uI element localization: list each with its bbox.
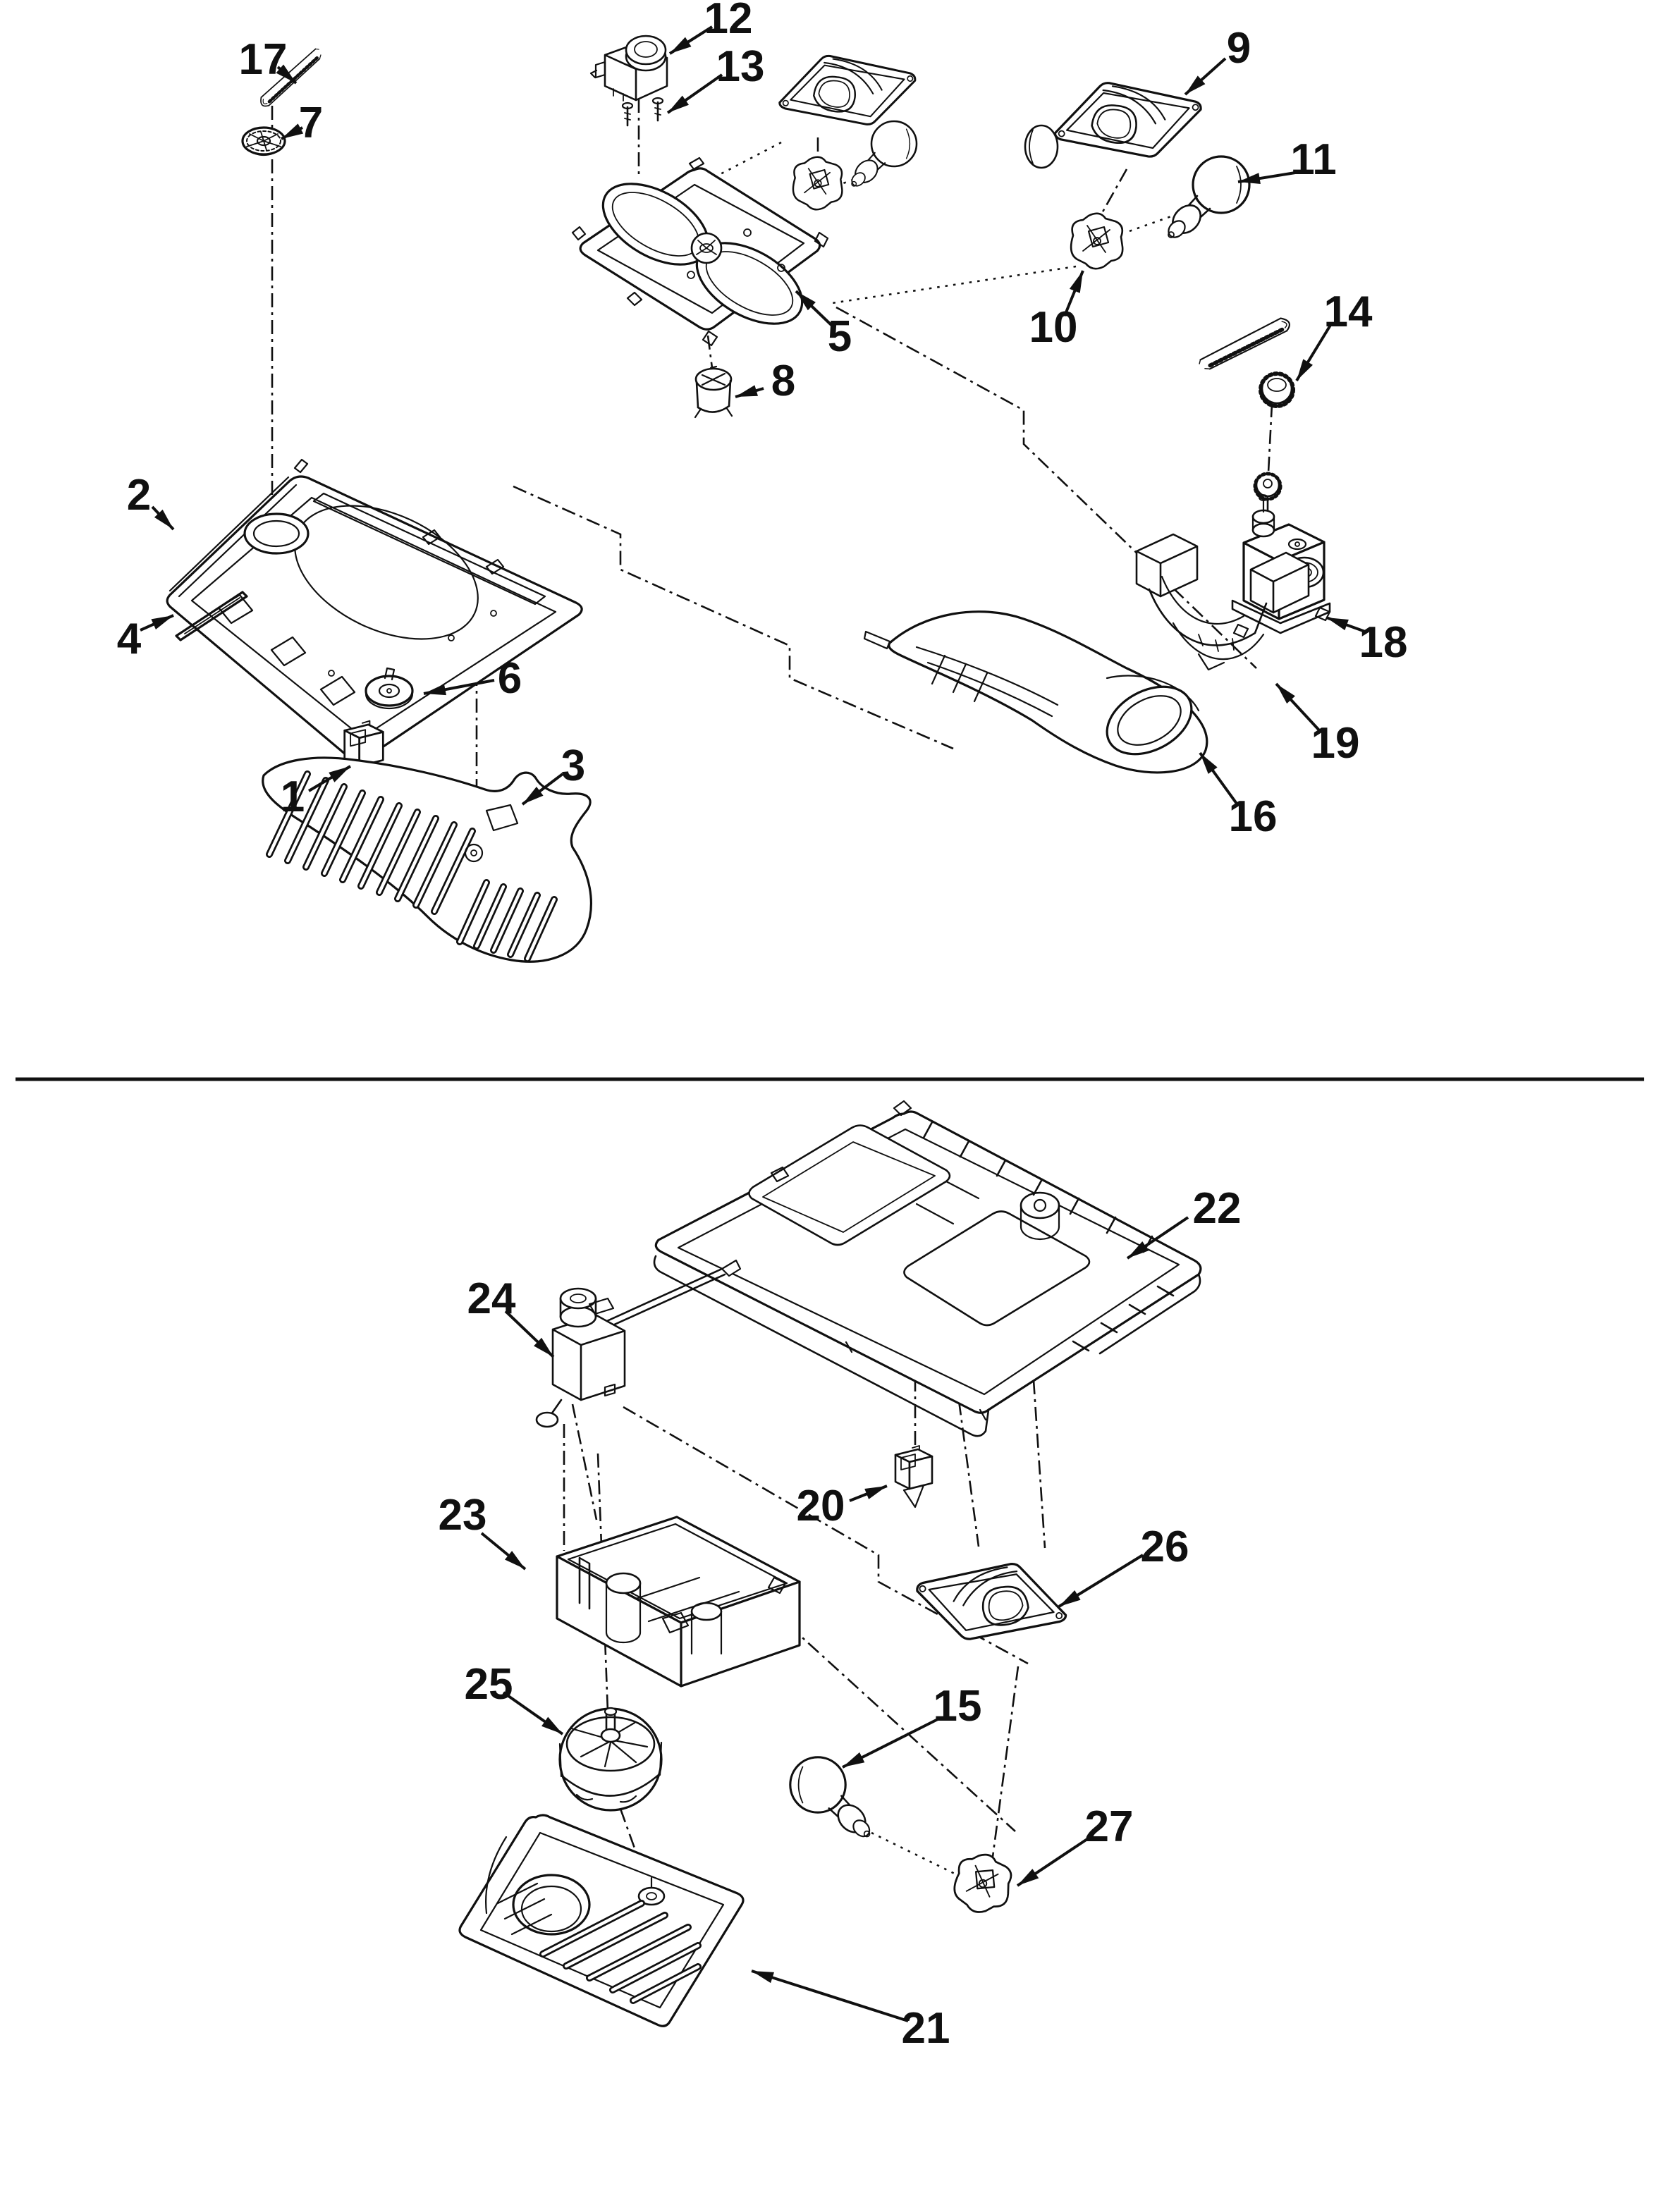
- callout-number-20: 20: [797, 1482, 845, 1530]
- part-cap-18: [1255, 474, 1280, 499]
- callout-number-25: 25: [465, 1660, 513, 1709]
- part-control-box-23: [557, 1517, 800, 1686]
- callout-14: 14: [1297, 288, 1373, 381]
- callout-number-11: 11: [1290, 135, 1337, 184]
- exploded-parts-diagram: 1 2 3 4 5 6 7 8 9 10 11 12 13 14 15 16 1…: [0, 0, 1659, 2212]
- callout-11: 11: [1238, 135, 1337, 184]
- callout-number-9: 9: [1227, 24, 1251, 73]
- part-mount-8: [695, 367, 732, 417]
- callout-number-17: 17: [239, 35, 288, 84]
- part-socket-left: [793, 157, 842, 209]
- part-lamp-cover-26: [912, 1553, 1071, 1651]
- callout-number-15: 15: [933, 1682, 982, 1731]
- callout-number-7: 7: [299, 99, 323, 147]
- callout-number-24: 24: [467, 1274, 516, 1323]
- callout-25: 25: [465, 1660, 563, 1734]
- leader-line-13: [668, 75, 722, 113]
- part-bulb-left: [850, 121, 917, 188]
- callout-19: 19: [1276, 684, 1359, 768]
- leader-line-15: [843, 1719, 939, 1767]
- callout-5: 5: [796, 291, 852, 361]
- callout-20: 20: [797, 1482, 887, 1530]
- callout-15: 15: [843, 1682, 981, 1767]
- callout-22: 22: [1127, 1184, 1241, 1258]
- leader-line-27: [1017, 1839, 1087, 1886]
- callout-18: 18: [1326, 617, 1407, 667]
- callout-4: 4: [117, 615, 173, 663]
- part-knob-14: [1261, 374, 1293, 406]
- callout-2: 2: [127, 471, 173, 529]
- callout-number-2: 2: [127, 471, 151, 520]
- part-drain-pan-21: [460, 1815, 743, 2026]
- callout-26: 26: [1059, 1523, 1189, 1606]
- callout-24: 24: [467, 1274, 553, 1357]
- part-top-panel-2: [167, 460, 582, 761]
- callout-number-5: 5: [828, 312, 852, 361]
- leader-line-21: [752, 1971, 908, 2021]
- part-switch-20: [895, 1446, 932, 1507]
- callout-number-10: 10: [1029, 303, 1078, 352]
- part-screws-13: [623, 98, 663, 125]
- part-air-duct-16: [864, 612, 1207, 773]
- callout-number-14: 14: [1324, 288, 1373, 336]
- callout-number-16: 16: [1229, 792, 1278, 841]
- part-fan-blade-25: [560, 1708, 661, 1810]
- callout-number-22: 22: [1193, 1184, 1242, 1233]
- part-belt-14: [1198, 311, 1292, 378]
- callout-21: 21: [752, 1971, 950, 2053]
- callout-number-12: 12: [704, 0, 753, 43]
- callout-23: 23: [439, 1491, 525, 1569]
- callout-number-8: 8: [771, 357, 795, 405]
- part-bracket-19: [1137, 534, 1309, 670]
- leader-line-8: [735, 388, 764, 397]
- part-socket-10: [1071, 214, 1122, 269]
- callout-number-6: 6: [498, 654, 522, 703]
- callout-27: 27: [1017, 1802, 1133, 1886]
- callout-number-27: 27: [1085, 1802, 1134, 1851]
- callout-7: 7: [281, 99, 323, 147]
- callout-16: 16: [1200, 753, 1277, 841]
- part-defrost-timer-24: [537, 1260, 740, 1427]
- callout-10: 10: [1029, 271, 1083, 352]
- leader-line-20: [850, 1486, 887, 1501]
- callout-8: 8: [735, 357, 795, 405]
- callout-number-21: 21: [902, 2004, 950, 2053]
- callout-number-23: 23: [439, 1491, 487, 1540]
- part-impeller-7: [243, 128, 285, 155]
- leader-line-2: [152, 507, 173, 529]
- part-lamp-cover-9: [1050, 72, 1206, 168]
- callout-number-26: 26: [1141, 1523, 1189, 1571]
- part-round-lens: [1025, 125, 1058, 168]
- leader-line-9: [1185, 59, 1225, 94]
- leader-line-26: [1059, 1555, 1143, 1606]
- part-timer-12: [591, 36, 667, 101]
- callout-17: 17: [239, 35, 296, 84]
- part-socket-27: [951, 1850, 1015, 1917]
- callout-number-18: 18: [1359, 618, 1408, 667]
- callout-number-4: 4: [117, 615, 142, 663]
- callout-13: 13: [668, 42, 764, 113]
- leader-line-4: [140, 615, 173, 630]
- part-bulb-15: [790, 1757, 873, 1840]
- callout-number-1: 1: [281, 773, 305, 821]
- callout-number-19: 19: [1311, 719, 1360, 768]
- part-fan-frame-5: [573, 158, 828, 345]
- part-bulb-11: [1165, 156, 1249, 240]
- leader-line-23: [482, 1533, 525, 1569]
- callout-number-13: 13: [716, 42, 765, 91]
- callout-number-3: 3: [561, 742, 585, 790]
- callout-9: 9: [1185, 24, 1251, 94]
